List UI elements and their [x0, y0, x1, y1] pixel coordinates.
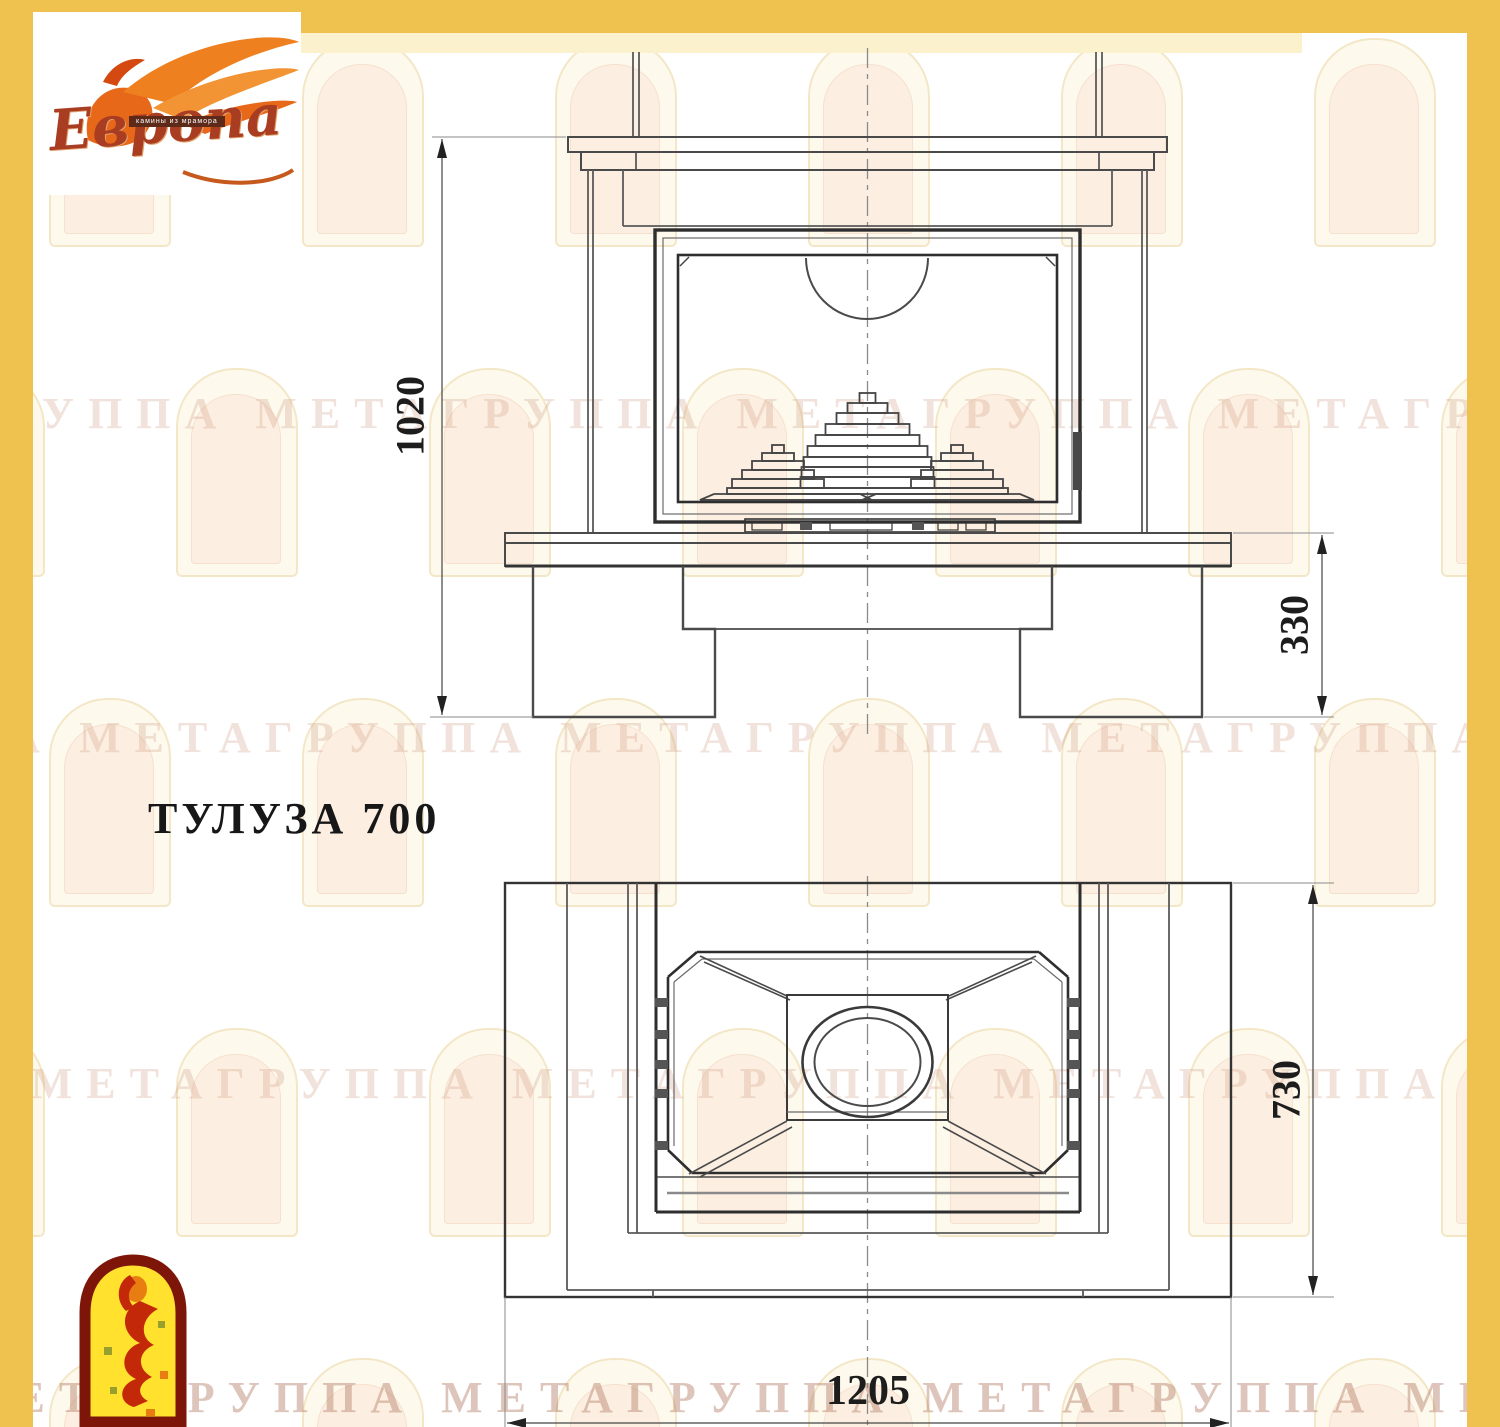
dimension-depth-label: 730	[1264, 1060, 1309, 1120]
firebox-frame	[655, 230, 1082, 522]
dimension-height: 1020	[388, 137, 567, 717]
dimension-width-label: 1205	[826, 1368, 910, 1414]
plan-view: 730 1205	[505, 876, 1334, 1427]
dimension-height-label: 1020	[388, 376, 433, 456]
brand-tagline: камины из мрамора	[129, 116, 225, 127]
dimension-base-label: 330	[1272, 595, 1317, 655]
fireplace-technical-drawing: 1020 330	[0, 0, 1500, 1427]
brand-logo: Европа камины из мрамора	[33, 12, 301, 195]
dimension-depth: 730	[1233, 883, 1334, 1297]
meta-badge-icon	[76, 1251, 190, 1427]
drawing-sheet: ГРУППА МЕТАГРУППА МЕТАГРУППА МЕТАГРУППА …	[0, 0, 1500, 1427]
model-title: ТУЛУЗА 700	[148, 793, 440, 844]
door-handle	[1073, 432, 1082, 490]
front-elevation-view: 1020 330	[388, 48, 1335, 737]
dimension-base-height: 330	[1204, 533, 1334, 717]
